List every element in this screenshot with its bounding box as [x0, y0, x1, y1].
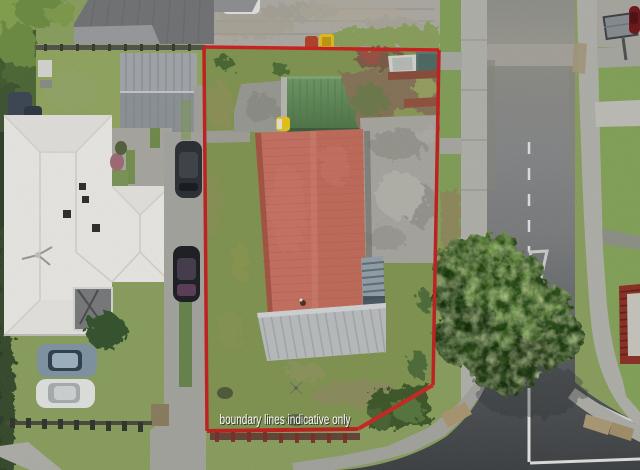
- svg-text:boundary lines indicative only: boundary lines indicative only: [220, 412, 351, 427]
